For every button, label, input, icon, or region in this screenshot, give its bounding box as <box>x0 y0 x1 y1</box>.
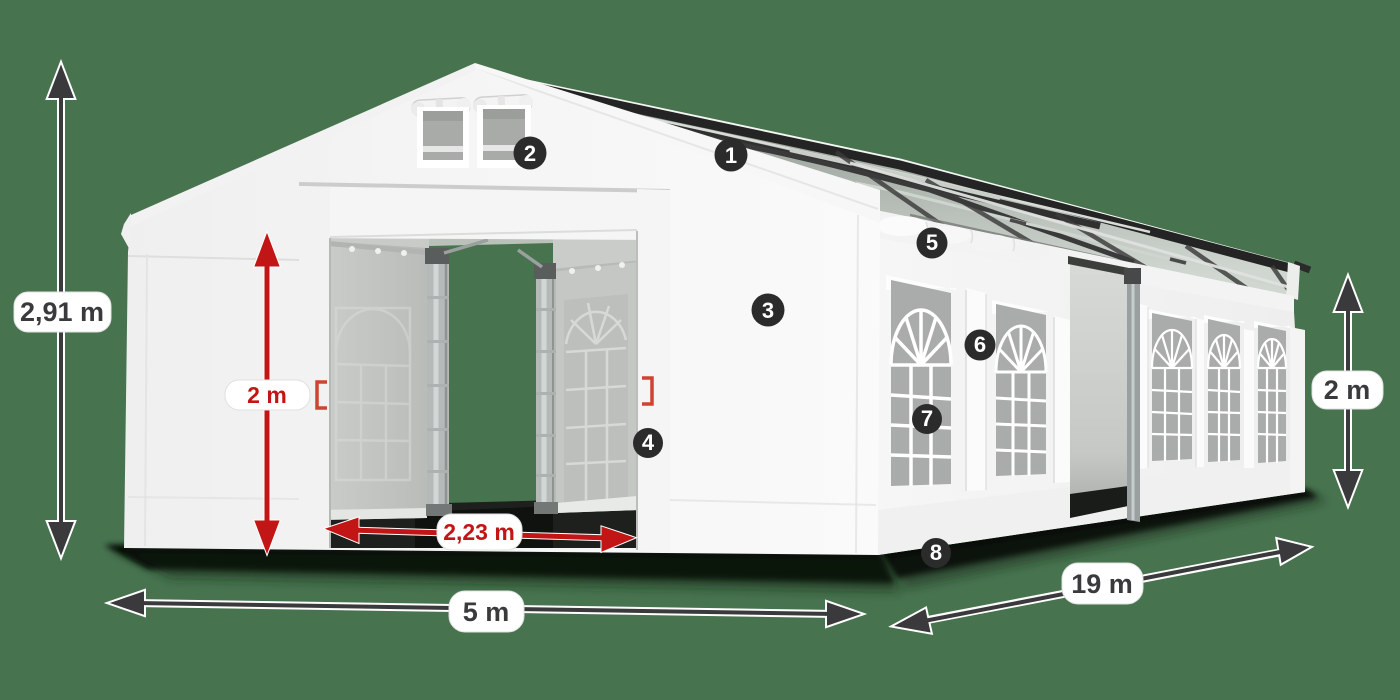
svg-text:3: 3 <box>762 298 774 323</box>
svg-text:2 m: 2 m <box>1324 375 1371 405</box>
svg-text:7: 7 <box>921 406 933 431</box>
svg-text:5 m: 5 m <box>463 597 510 627</box>
svg-text:2 m: 2 m <box>247 382 287 408</box>
svg-text:5: 5 <box>926 230 938 255</box>
svg-text:8: 8 <box>930 540 942 565</box>
svg-text:2,23 m: 2,23 m <box>443 519 515 545</box>
svg-text:2,91 m: 2,91 m <box>20 297 104 327</box>
svg-text:4: 4 <box>642 430 655 455</box>
svg-text:1: 1 <box>725 143 737 168</box>
svg-text:2: 2 <box>524 141 536 166</box>
svg-text:6: 6 <box>974 332 986 357</box>
svg-text:19 m: 19 m <box>1071 569 1133 599</box>
